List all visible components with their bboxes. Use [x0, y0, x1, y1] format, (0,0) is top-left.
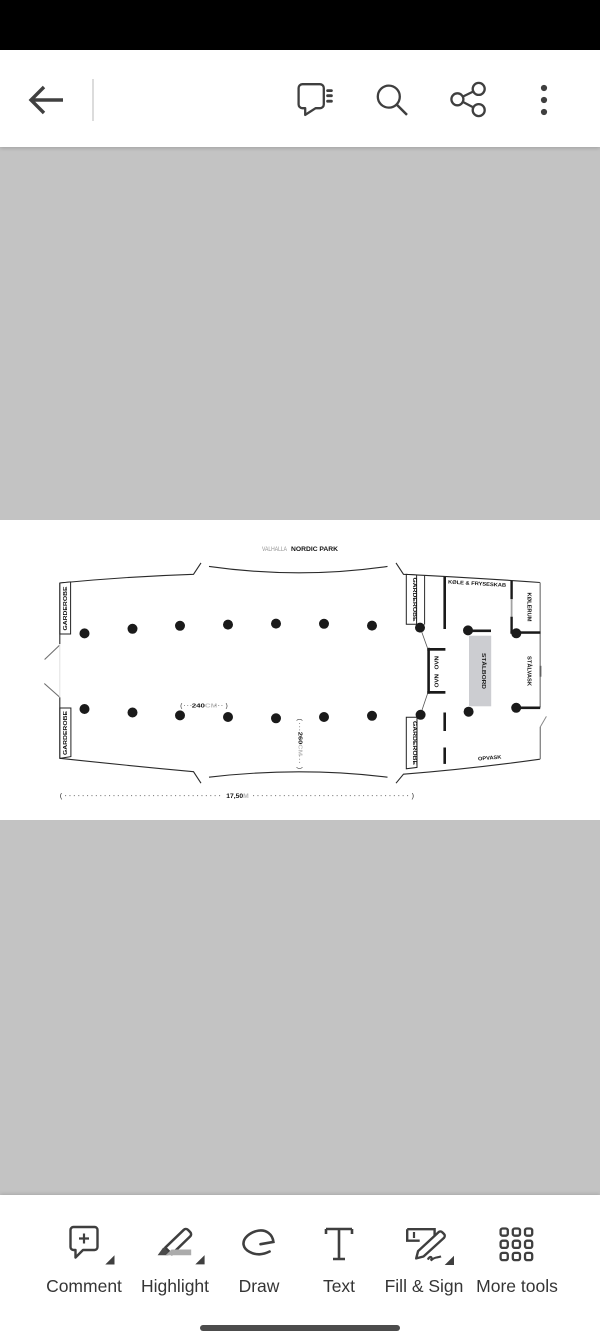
svg-text:OVN: OVN: [434, 655, 440, 669]
svg-text:240CM: 240CM: [192, 704, 218, 710]
svg-text:GARDEROBE: GARDEROBE: [411, 578, 417, 623]
svg-text:STÅLBORD: STÅLBORD: [480, 653, 487, 689]
svg-text:KØLE & FRYSESKAB: KØLE & FRYSESKAB: [448, 579, 507, 588]
svg-text:): ): [296, 767, 303, 769]
svg-text:260CM: 260CM: [297, 732, 303, 756]
svg-text:GARDEROBE: GARDEROBE: [63, 710, 69, 755]
svg-text:17,50M: 17,50M: [226, 793, 249, 800]
svg-text:): ): [226, 703, 228, 710]
svg-text:KØLERUM: KØLERUM: [525, 593, 531, 622]
svg-text:NORDIC PARK: NORDIC PARK: [291, 546, 338, 553]
svg-text:OPVASK: OPVASK: [478, 755, 502, 763]
svg-text:): ): [412, 793, 414, 800]
svg-text:STÅLVASK: STÅLVASK: [525, 656, 532, 686]
svg-text:(: (: [60, 793, 63, 800]
svg-text:(: (: [296, 719, 303, 722]
svg-text:VALHALLA: VALHALLA: [262, 547, 287, 553]
svg-text:GARDEROBE: GARDEROBE: [411, 721, 417, 766]
svg-text:OVN: OVN: [434, 673, 440, 687]
svg-text:GARDEROBE: GARDEROBE: [63, 586, 69, 631]
svg-text:(: (: [180, 703, 183, 710]
